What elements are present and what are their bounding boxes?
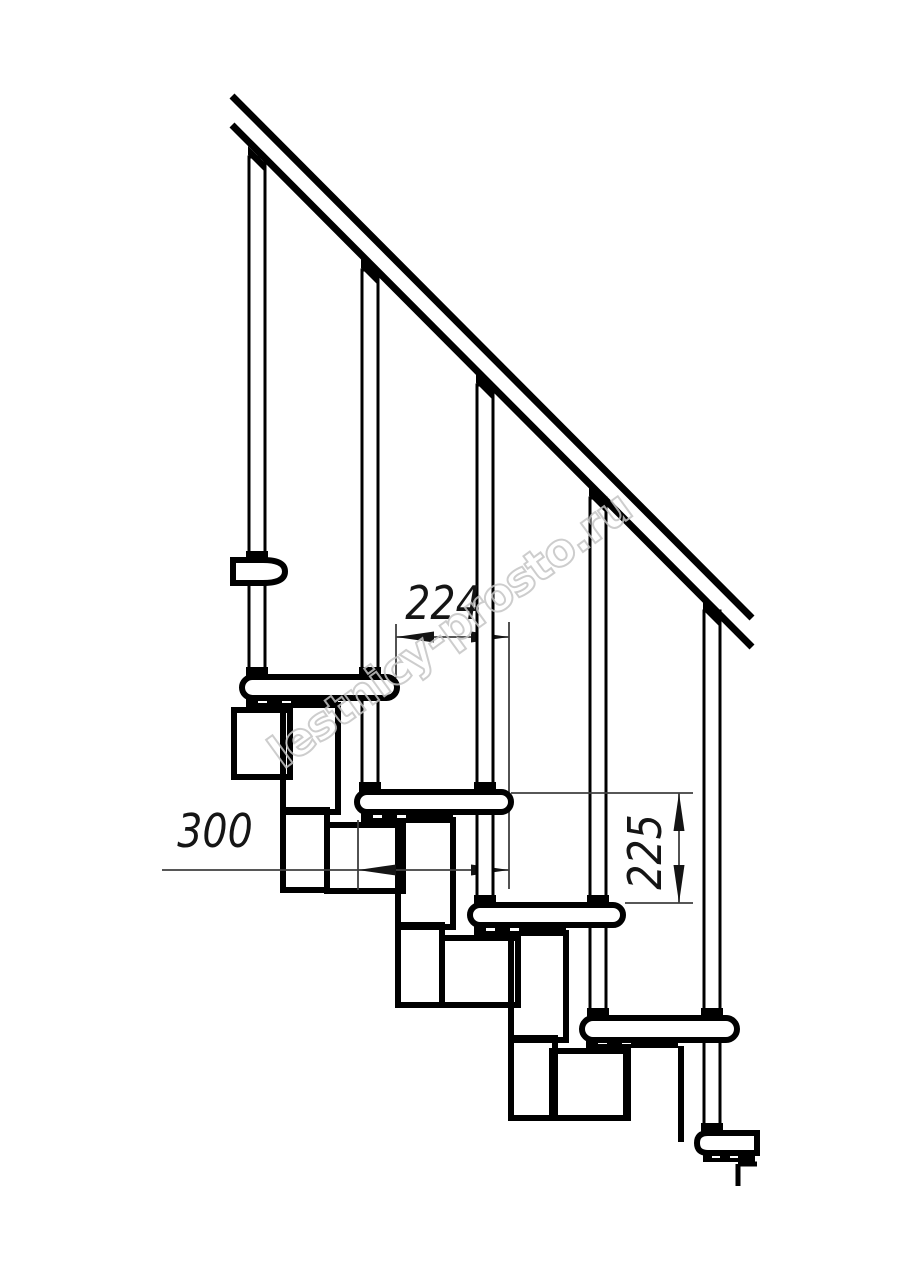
arrowhead-down [674,865,685,903]
support-module-5-cropped [738,1164,757,1186]
support-module-2 [327,820,453,1005]
collar [701,1123,723,1133]
tread-2 [357,792,511,812]
baluster-1 [249,157,265,679]
collar [246,667,268,677]
arrowhead-left [358,865,396,876]
baluster-5 [704,611,720,1135]
balusters [249,157,720,1135]
collar [474,782,496,792]
module-box [442,938,518,1005]
support-modules [234,705,757,1186]
module-drop-inner [398,925,442,1005]
baluster-4 [590,498,606,1020]
tread-4 [582,1018,737,1040]
module-drop-outer [398,820,453,927]
collar [587,895,609,905]
collar [701,1008,723,1018]
staircase-drawing-page: 224 300 225 lestnicy-prosto.ru [0,0,914,1280]
dimension-label-depth: 300 [172,804,258,858]
dimension-225 [674,793,685,903]
module-box [552,1051,628,1118]
support-module-3 [442,933,566,1118]
module-box [327,825,403,891]
dimension-label-rise: 225 [617,805,673,900]
support-module-4 [552,1046,681,1142]
tread-3 [470,905,623,925]
collar [359,782,381,792]
arrowhead-up [674,793,685,831]
tread-0-cropped [233,560,285,583]
collar [587,1008,609,1018]
module-drop-inner [283,810,327,890]
collar [246,551,268,561]
module-drop-inner [511,1038,555,1118]
tread-5-cropped [697,1133,757,1153]
collar [474,895,496,905]
